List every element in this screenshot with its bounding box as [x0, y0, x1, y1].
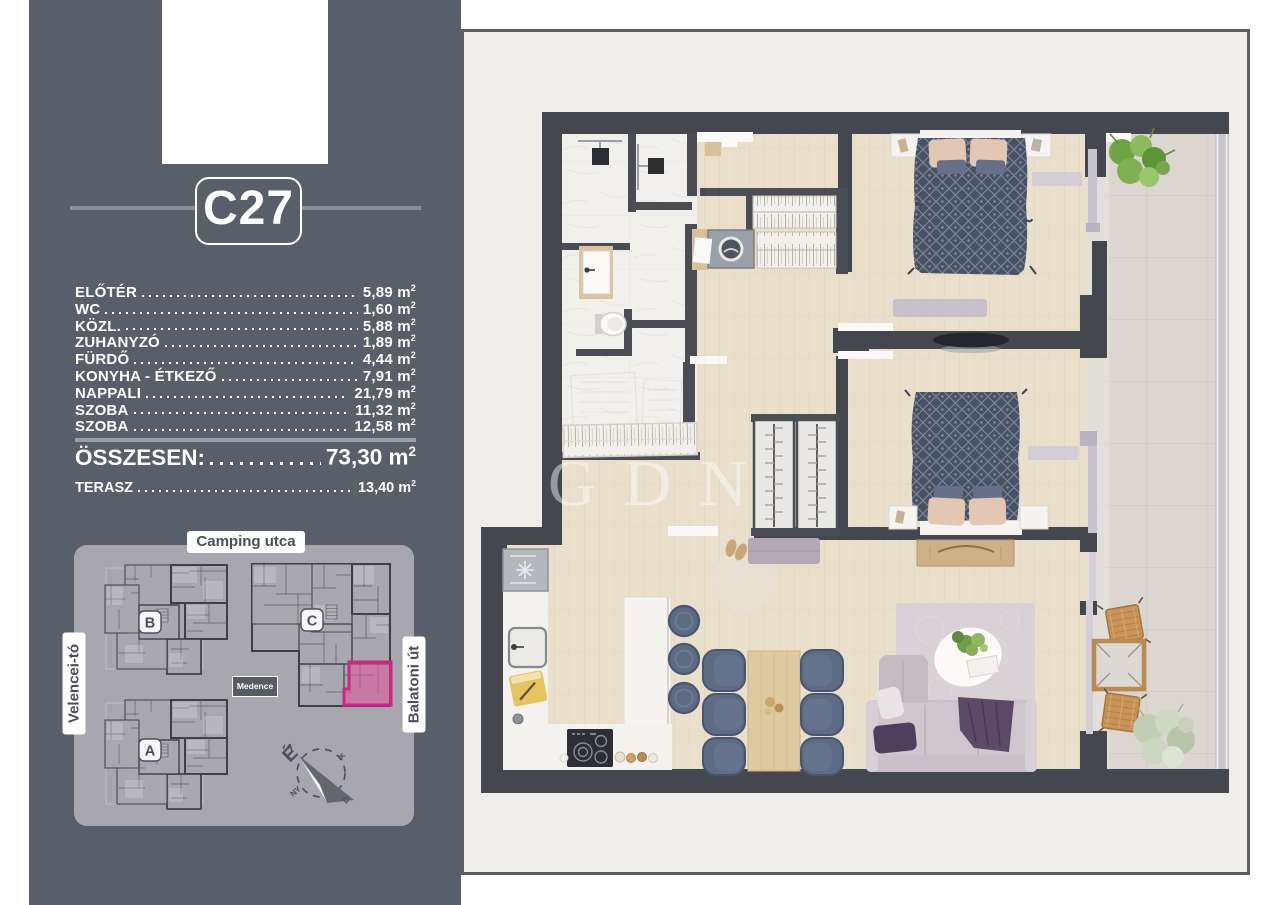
svg-text:GDN: GDN: [548, 447, 775, 520]
svg-text:A: A: [145, 744, 156, 760]
svg-text:C: C: [307, 614, 318, 630]
svg-text:B: B: [145, 616, 155, 632]
